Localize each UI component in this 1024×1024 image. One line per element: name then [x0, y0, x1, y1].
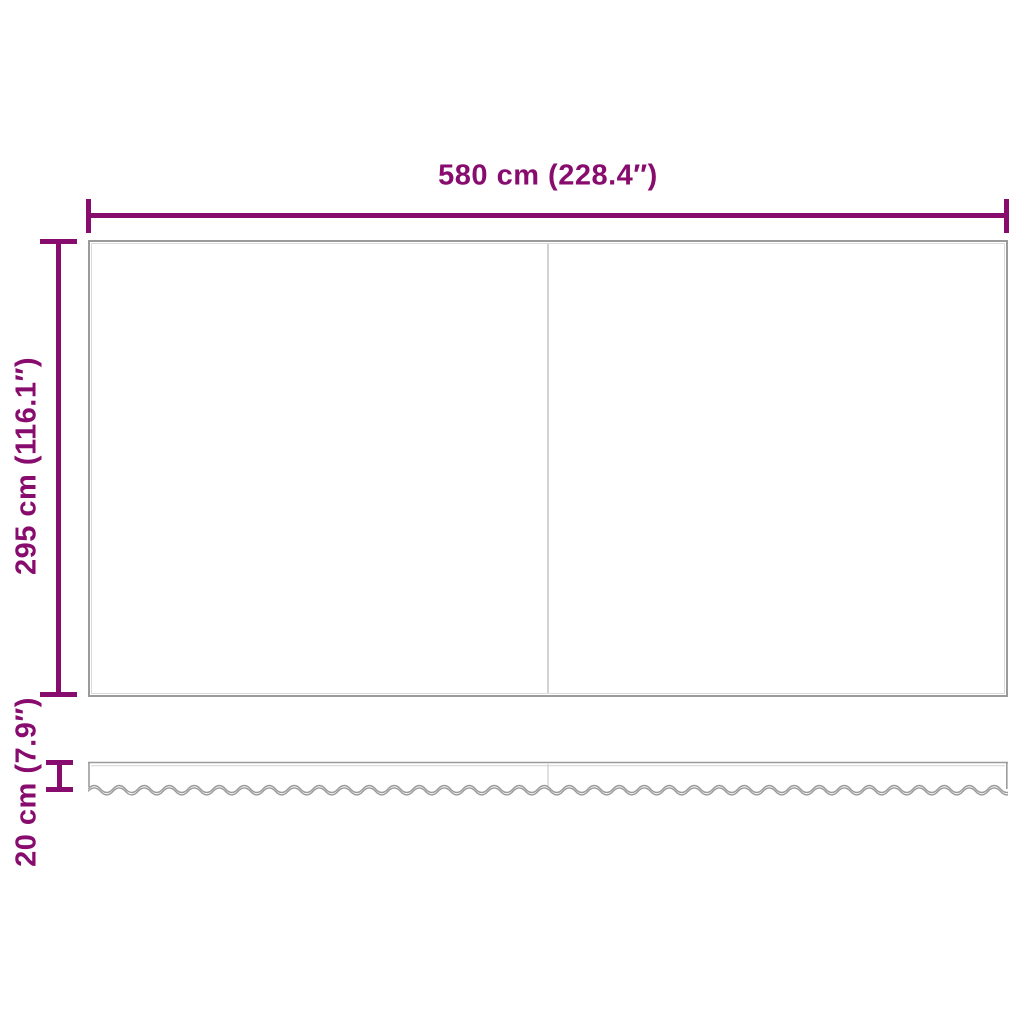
- awning-fabric-panel: [88, 240, 1008, 697]
- fabric-panel-center-seam: [547, 244, 549, 693]
- product-dimension-diagram: 580 cm (228.4″) 295 cm (116.1″) 20 cm (7…: [0, 0, 1024, 1024]
- valance-strip: [88, 761, 1008, 805]
- height-dimension-line: [56, 241, 61, 696]
- width-dimension-line: [88, 213, 1008, 218]
- width-dimension-right-cap: [1004, 199, 1009, 233]
- height-dimension-bottom-cap: [40, 692, 77, 697]
- width-dimension-left-cap: [86, 199, 91, 233]
- width-dimension-label: 580 cm (228.4″): [438, 160, 658, 193]
- valance-dimension-top-cap: [46, 760, 73, 765]
- height-dimension-top-cap: [40, 239, 77, 244]
- valance-dimension-bottom-cap: [46, 787, 73, 792]
- valance-dimension-line: [57, 762, 62, 790]
- valance-height-label: 20 cm (7.9″): [11, 697, 44, 867]
- height-dimension-label: 295 cm (116.1″): [11, 357, 44, 575]
